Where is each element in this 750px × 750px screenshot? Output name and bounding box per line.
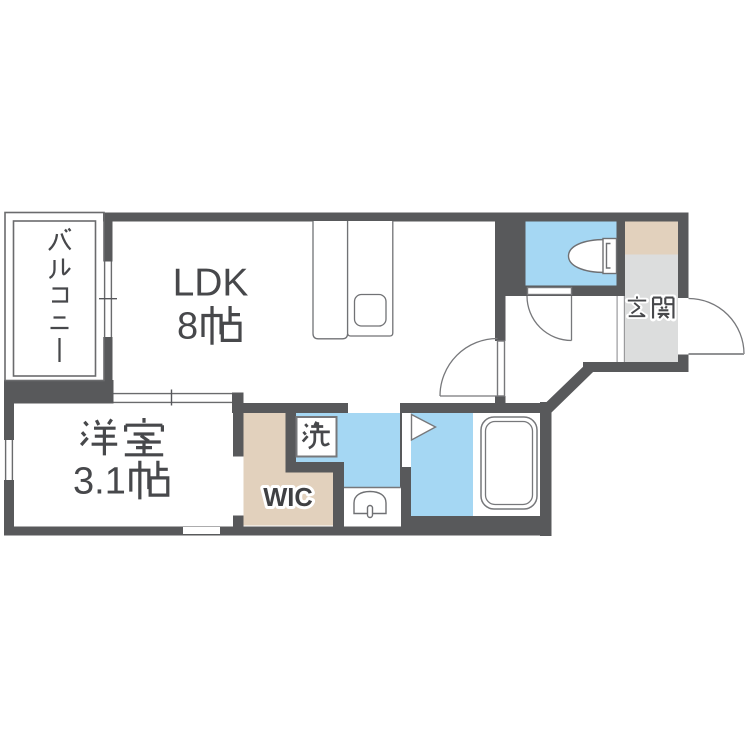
svg-text:LDK: LDK <box>173 262 249 305</box>
svg-text:WIC: WIC <box>263 484 313 512</box>
svg-text:8: 8 <box>177 306 198 348</box>
svg-text:3.1: 3.1 <box>73 461 126 503</box>
